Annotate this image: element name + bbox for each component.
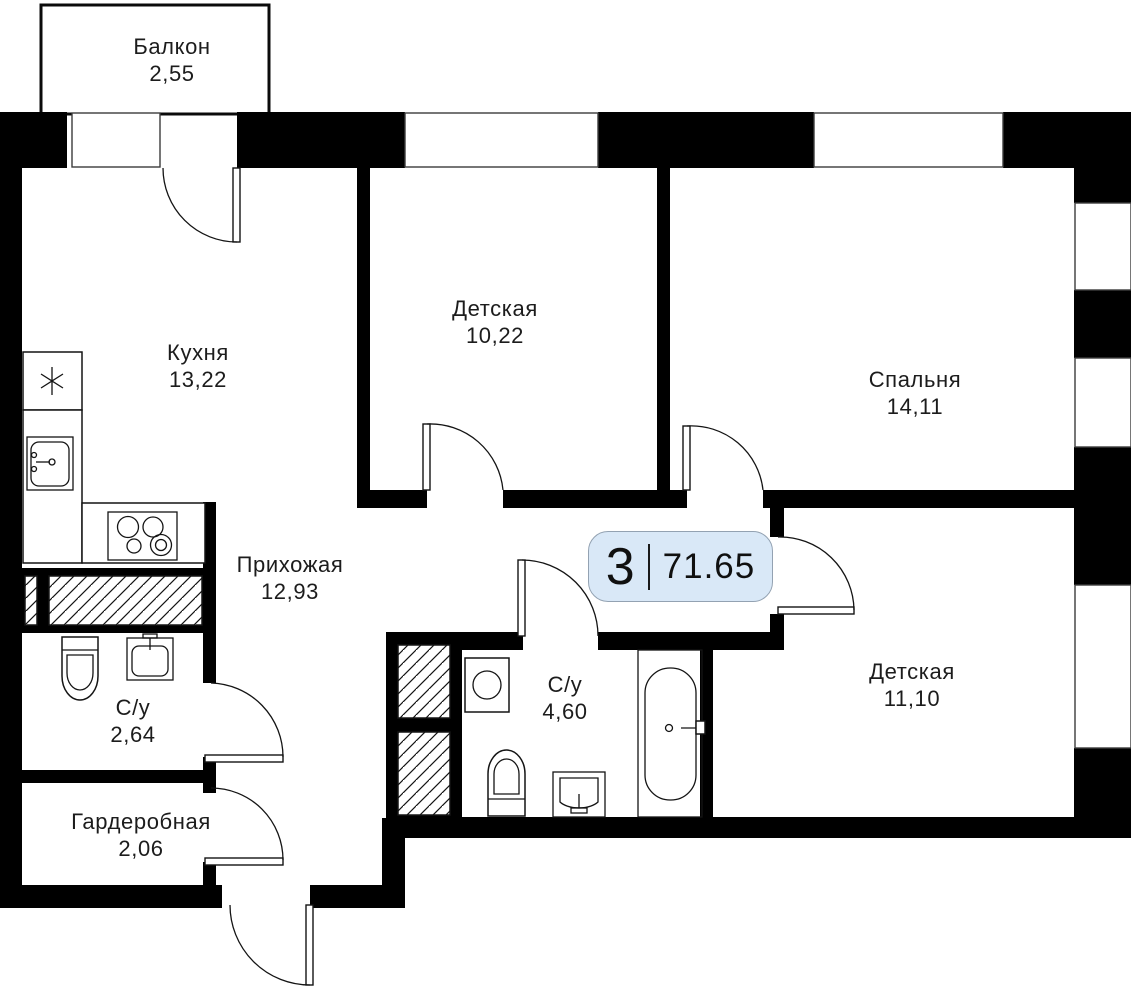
- toilet-icon: [488, 750, 525, 816]
- washing-machine-icon: [465, 658, 509, 712]
- room-area: 2,55: [133, 60, 210, 87]
- room-area: 12,93: [237, 578, 344, 605]
- room-name: Спальня: [869, 366, 962, 393]
- apartment-info-badge: 3 71.65: [588, 531, 773, 602]
- room-area: 11,10: [869, 685, 955, 712]
- room-label-nursery-2: Детская 11,10: [869, 658, 955, 712]
- room-area: 14,11: [869, 393, 962, 420]
- badge-divider: [648, 544, 650, 590]
- room-name: Кухня: [167, 339, 229, 366]
- room-label-nursery-1: Детская 10,22: [452, 295, 538, 349]
- sink-icon: [127, 634, 173, 680]
- room-area: 13,22: [167, 366, 229, 393]
- total-area: 71.65: [663, 549, 756, 584]
- room-label-bedroom: Спальня 14,11: [869, 366, 962, 420]
- bathtub-icon: [638, 650, 705, 817]
- room-area: 2,06: [71, 835, 211, 862]
- toilet-icon: [62, 637, 98, 700]
- room-label-kitchen: Кухня 13,22: [167, 339, 229, 393]
- room-name: Детская: [869, 658, 955, 685]
- room-label-hallway: Прихожая 12,93: [237, 551, 344, 605]
- room-area: 10,22: [452, 322, 538, 349]
- room-name: С/у: [542, 671, 587, 698]
- room-name: С/у: [110, 694, 155, 721]
- room-name: Прихожая: [237, 551, 344, 578]
- room-name: Детская: [452, 295, 538, 322]
- fridge-icon: [23, 352, 82, 410]
- sink-icon: [553, 772, 605, 817]
- room-label-balcony: Балкон 2,55: [133, 33, 210, 87]
- room-count: 3: [606, 541, 635, 593]
- room-name: Балкон: [133, 33, 210, 60]
- room-name: Гардеробная: [71, 808, 211, 835]
- room-label-bathroom-1: С/у 2,64: [110, 694, 155, 748]
- room-area: 2,64: [110, 721, 155, 748]
- room-area: 4,60: [542, 698, 587, 725]
- floor-plan: Балкон 2,55 Кухня 13,22 Детская 10,22 Сп…: [0, 0, 1131, 1000]
- windows: [72, 113, 1131, 748]
- room-label-bathroom-2: С/у 4,60: [542, 671, 587, 725]
- room-label-wardrobe: Гардеробная 2,06: [71, 808, 211, 862]
